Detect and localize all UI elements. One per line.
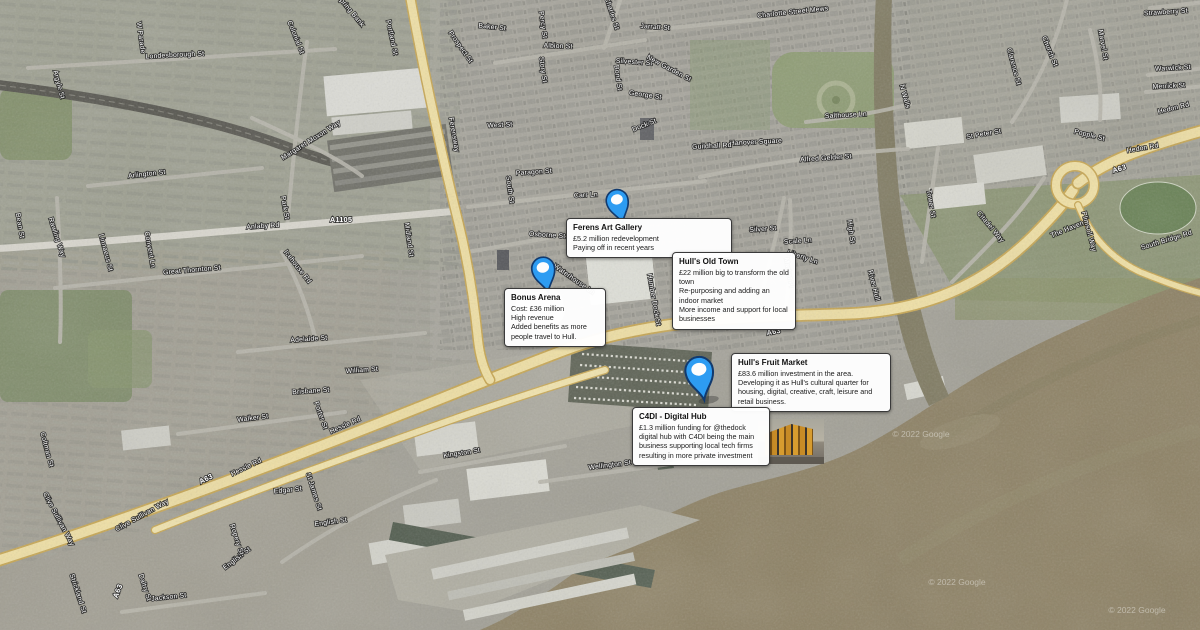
street-label: Carr Ln [574,191,598,199]
callout-bonus-arena[interactable]: Bonus Arena Cost: £36 million High reven… [504,288,606,347]
c4di-building-shape [765,424,813,455]
callout-hulls-fruit-market[interactable]: Hull's Fruit Market £83.6 million invest… [731,353,891,412]
callout-body: £1.3 million funding for @thedock digita… [639,423,763,460]
callout-c4di-digital-hub[interactable]: C4DI - Digital Hub £1.3 million funding … [632,407,770,466]
google-attribution: © 2022 Google [892,429,950,439]
callout-title: C4DI - Digital Hub [639,412,763,422]
callout-body: £83.6 million investment in the area. De… [738,369,884,406]
callout-title: Hull's Fruit Market [738,358,884,368]
street-label: Albion St [543,42,572,50]
callout-title: Hull's Old Town [679,257,789,267]
callout-title: Bonus Arena [511,293,599,303]
google-attribution: © 2022 Google [1108,605,1166,615]
callout-body: Cost: £36 million High revenue Added ben… [511,304,599,341]
callout-body: £22 million big to transform the old tow… [679,268,789,324]
callout-title: Ferens Art Gallery [573,223,725,233]
street-label: A1105 [330,215,352,224]
street-label: West St [487,121,512,129]
google-attribution: © 2022 Google [928,577,986,587]
callout-body: £5.2 million redevelopment Paying off in… [573,234,725,253]
callout-hulls-old-town[interactable]: Hull's Old Town £22 million big to trans… [672,252,796,330]
map-screenshot: Londesborough StPortland StProspect StW … [0,0,1200,630]
